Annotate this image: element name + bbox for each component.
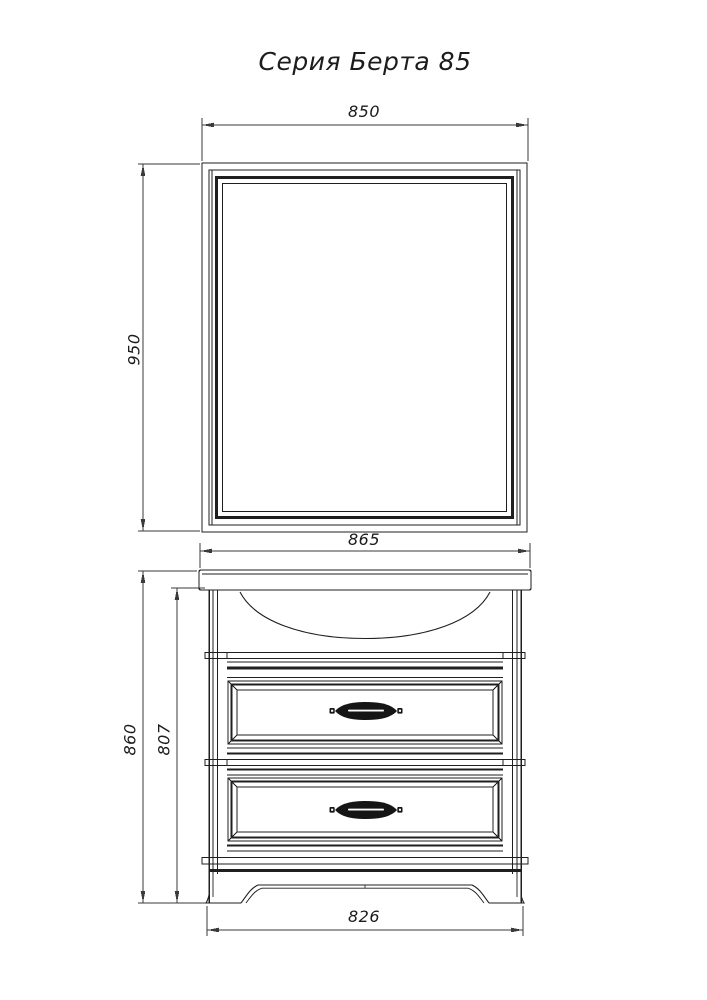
dimension-lines (138, 118, 530, 936)
drawer-handle-icon (330, 801, 403, 819)
arrowhead-icon (141, 571, 146, 583)
arrowhead-icon (511, 928, 523, 933)
dim-mirror-height-lines (138, 164, 200, 531)
apron-arch-inner (246, 888, 484, 903)
basin-bowl-curve (240, 592, 490, 639)
arrowhead-icon (518, 549, 530, 554)
arrowhead-icon (200, 549, 212, 554)
vanity-cabinet (199, 570, 531, 903)
dim-mirror-width-lines (202, 118, 528, 161)
mirror-frame (202, 163, 527, 532)
arrowhead-icon (175, 588, 180, 600)
drawing-title: Серия Берта 85 (230, 47, 500, 76)
arrowhead-icon (141, 519, 146, 531)
left-pilaster (209, 590, 218, 903)
dim-cabinet-height-lines (171, 588, 205, 903)
arrowhead-icon (141, 891, 146, 903)
right-pilaster (513, 590, 522, 903)
dim-cabinet-height-value: 807 (155, 717, 174, 763)
arrowhead-icon (175, 891, 180, 903)
dim-mirror-width-value: 850 (334, 102, 394, 121)
dim-base-width-value: 826 (334, 907, 394, 926)
top-rail (227, 662, 503, 678)
washbasin-top (199, 570, 531, 590)
upper-ledge (205, 653, 525, 659)
arrowhead-icon (141, 164, 146, 176)
dim-total-height-value: 860 (121, 717, 140, 763)
arrowhead-icon (202, 123, 214, 128)
dim-washbasin-width-value: 865 (334, 530, 394, 549)
arrowhead-icon (207, 928, 219, 933)
technical-drawing-page: Серия Берта 85 850 950 865 860 807 826 (0, 0, 707, 1000)
right-leg-foot (489, 895, 524, 903)
left-leg-foot (206, 895, 241, 903)
bottom-rail (202, 846, 528, 871)
apron-and-legs (206, 874, 524, 903)
drawing-canvas (0, 0, 707, 1000)
drawer-handle-icon (330, 702, 403, 720)
arrowhead-icon (516, 123, 528, 128)
middle-rail (205, 748, 525, 775)
dim-mirror-height-value: 950 (125, 327, 144, 373)
